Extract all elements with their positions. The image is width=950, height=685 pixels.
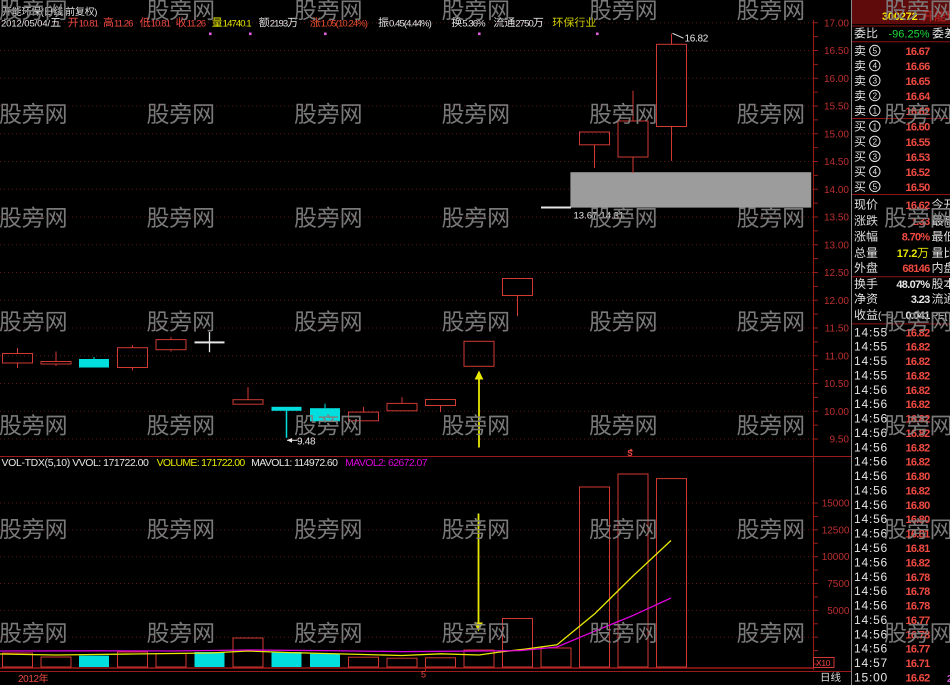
- svg-text:14:56: 14:56: [854, 440, 888, 454]
- svg-text:14.00: 14.00: [824, 185, 849, 196]
- svg-text:17.00: 17.00: [824, 18, 849, 29]
- svg-text:16.82: 16.82: [905, 356, 930, 368]
- svg-text:14:56: 14:56: [854, 469, 888, 483]
- svg-text:16.55: 16.55: [905, 137, 930, 149]
- svg-text:13.00: 13.00: [824, 240, 849, 251]
- svg-text:14:56: 14:56: [854, 512, 888, 526]
- svg-text:15:00: 15:00: [854, 670, 888, 684]
- svg-text:14:56: 14:56: [854, 627, 888, 641]
- svg-text:12.00: 12.00: [824, 296, 849, 307]
- svg-text:3: 3: [873, 153, 878, 162]
- svg-text:15000: 15000: [822, 499, 850, 510]
- svg-text:16.82: 16.82: [905, 342, 930, 354]
- svg-text:): ): [94, 7, 97, 18]
- svg-text:1: 1: [873, 122, 878, 131]
- svg-text:16.82: 16.82: [905, 399, 930, 411]
- svg-text:16.00: 16.00: [824, 74, 849, 85]
- svg-text:9.48: 9.48: [297, 436, 316, 447]
- svg-text:14:56: 14:56: [854, 498, 888, 512]
- svg-text:10.50: 10.50: [824, 379, 849, 390]
- svg-text:16.53: 16.53: [905, 152, 930, 164]
- svg-text:14:56: 14:56: [854, 426, 888, 440]
- svg-text:3: 3: [873, 77, 878, 86]
- svg-text:14:56: 14:56: [854, 570, 888, 584]
- svg-text:1: 1: [873, 107, 878, 116]
- svg-text:14:56: 14:56: [854, 584, 888, 598]
- svg-text:15.50: 15.50: [824, 102, 849, 113]
- svg-text:2012: 2012: [18, 674, 39, 685]
- svg-text:9.50: 9.50: [830, 435, 850, 446]
- svg-text:16.81: 16.81: [905, 543, 930, 555]
- svg-text:3.23: 3.23: [911, 294, 930, 306]
- svg-text:16.82: 16.82: [905, 327, 930, 339]
- svg-text:14:56: 14:56: [854, 599, 888, 613]
- svg-text:16.50: 16.50: [824, 46, 849, 57]
- svg-text:16.82: 16.82: [905, 486, 930, 498]
- svg-text:14:55: 14:55: [854, 340, 888, 354]
- svg-text:14:56: 14:56: [854, 555, 888, 569]
- svg-text:16.77: 16.77: [905, 644, 930, 656]
- svg-text:14740.1: 14740.1: [223, 18, 252, 29]
- svg-text:14:56: 14:56: [854, 484, 888, 498]
- svg-text:16.82: 16.82: [905, 370, 930, 382]
- svg-text:14:57: 14:57: [854, 656, 888, 670]
- svg-text:13.50: 13.50: [824, 213, 849, 224]
- svg-text:14:55: 14:55: [854, 368, 888, 382]
- svg-text:14:56: 14:56: [854, 527, 888, 541]
- svg-text:0.45(4.44%): 0.45(4.44%): [389, 18, 432, 29]
- svg-text:2193: 2193: [270, 18, 288, 29]
- svg-text:10.00: 10.00: [824, 407, 849, 418]
- svg-text:12500: 12500: [822, 525, 850, 536]
- svg-text:16.80: 16.80: [905, 471, 930, 483]
- svg-text:16.71: 16.71: [905, 658, 930, 670]
- svg-text:MAVOL2: 62672.07: MAVOL2: 62672.07: [345, 457, 428, 469]
- svg-text:14:56: 14:56: [854, 541, 888, 555]
- svg-text:5000: 5000: [827, 606, 850, 617]
- svg-text:11.50: 11.50: [825, 324, 850, 335]
- svg-text:11.00: 11.00: [825, 351, 850, 362]
- svg-text:12.50: 12.50: [824, 268, 849, 279]
- svg-text:5: 5: [873, 183, 878, 192]
- svg-text:2: 2: [873, 92, 878, 101]
- svg-text:16.50: 16.50: [905, 182, 930, 194]
- svg-text:-96.25%: -96.25%: [889, 29, 930, 41]
- svg-text:14:55: 14:55: [854, 325, 888, 339]
- svg-text:16.66: 16.66: [905, 61, 930, 73]
- svg-text:4: 4: [873, 62, 878, 71]
- svg-text:17.2: 17.2: [897, 248, 917, 260]
- svg-text:10000: 10000: [822, 552, 850, 563]
- svg-text:16.82: 16.82: [685, 34, 709, 45]
- svg-text:14:56: 14:56: [854, 383, 888, 397]
- svg-text:16.64: 16.64: [905, 91, 931, 103]
- svg-text:16.82: 16.82: [905, 385, 930, 397]
- svg-text:16.67: 16.67: [905, 46, 930, 58]
- svg-text:16.82: 16.82: [905, 442, 930, 454]
- svg-text:16.65: 16.65: [905, 76, 930, 88]
- svg-text:7500: 7500: [827, 579, 850, 590]
- svg-text:15.00: 15.00: [824, 129, 849, 140]
- svg-text:VOLUME: 171722.00: VOLUME: 171722.00: [157, 457, 246, 469]
- svg-text:14:56: 14:56: [854, 613, 888, 627]
- svg-text:16.78: 16.78: [905, 572, 930, 584]
- svg-text:14:55: 14:55: [854, 354, 888, 368]
- svg-text:14:56: 14:56: [854, 412, 888, 426]
- svg-text:13.67-14.31: 13.67-14.31: [574, 211, 625, 222]
- svg-text:MAVOL1: 114972.60: MAVOL1: 114972.60: [251, 457, 338, 469]
- svg-text:11.26: 11.26: [114, 18, 133, 29]
- svg-text:VVOL: 171722.00: VVOL: 171722.00: [72, 457, 149, 469]
- svg-text:16.78: 16.78: [905, 586, 930, 598]
- svg-text:4: 4: [873, 168, 878, 177]
- svg-text:5: 5: [873, 47, 878, 56]
- svg-text:2: 2: [873, 138, 878, 147]
- svg-text:16.62: 16.62: [905, 672, 930, 684]
- svg-text:16.82: 16.82: [905, 457, 930, 469]
- svg-text:1.05(10.24%): 1.05(10.24%): [321, 18, 368, 29]
- svg-text:2012/05/04/: 2012/05/04/: [1, 18, 51, 29]
- svg-text:10.81: 10.81: [79, 18, 99, 29]
- svg-text:16.80: 16.80: [905, 500, 930, 512]
- svg-text:VOL-TDX(5,10): VOL-TDX(5,10): [2, 457, 70, 469]
- svg-text:11.26: 11.26: [187, 18, 206, 29]
- svg-text:2750: 2750: [515, 18, 533, 29]
- svg-text:14:56: 14:56: [854, 455, 888, 469]
- svg-text:16.78: 16.78: [905, 601, 930, 613]
- svg-text:16.82: 16.82: [905, 557, 930, 569]
- svg-text:8.70%: 8.70%: [902, 232, 931, 244]
- svg-text:68146: 68146: [902, 263, 930, 275]
- svg-text:5: 5: [421, 670, 426, 680]
- svg-text:X10: X10: [816, 658, 831, 668]
- svg-text:14:56: 14:56: [854, 642, 888, 656]
- svg-text:14:56: 14:56: [854, 397, 888, 411]
- svg-text:48.07%: 48.07%: [896, 279, 930, 291]
- svg-text:14.50: 14.50: [824, 157, 849, 168]
- svg-text:16.52: 16.52: [905, 167, 930, 179]
